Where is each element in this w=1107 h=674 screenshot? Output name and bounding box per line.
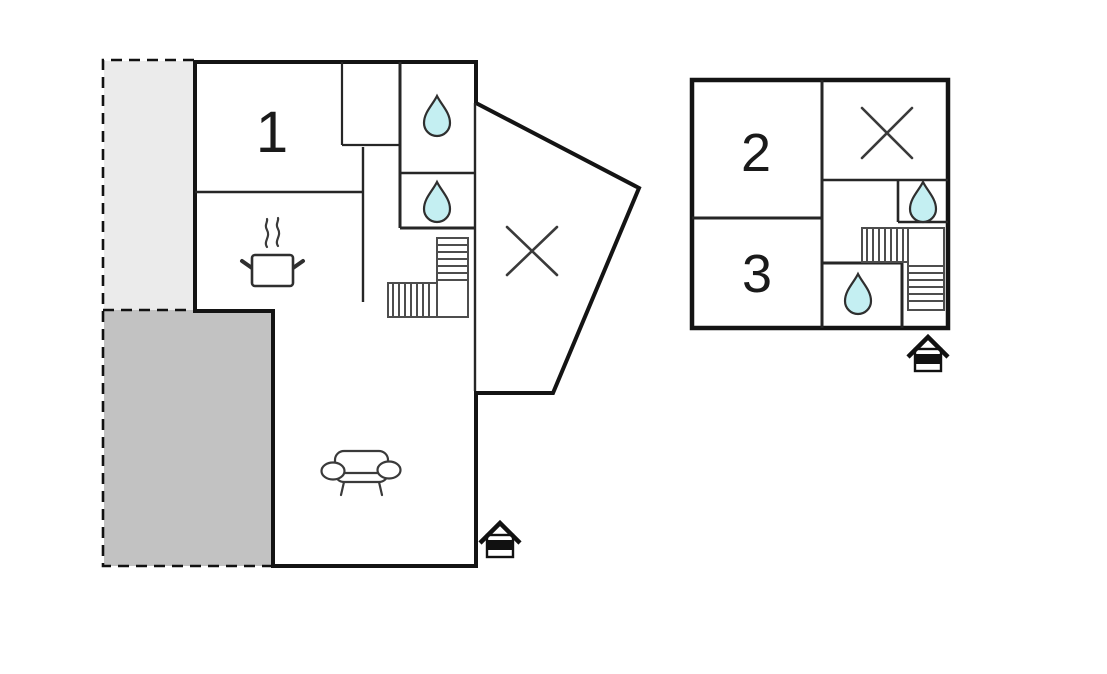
stairs-treads-horizontal-run bbox=[867, 229, 903, 261]
upper-floor-plan: 2 3 bbox=[692, 80, 948, 371]
sofa-armrest bbox=[378, 462, 401, 479]
terrace-upper-area bbox=[104, 61, 195, 310]
room-label-3: 3 bbox=[742, 244, 772, 304]
stairs-treads-horizontal-run bbox=[393, 284, 429, 316]
sofa-armrest bbox=[322, 463, 345, 480]
entrance-house-band bbox=[487, 540, 513, 550]
entrance-icon bbox=[908, 337, 948, 371]
stairs-upper-flight bbox=[437, 238, 468, 317]
entrance-icon bbox=[480, 523, 520, 557]
room-label-2: 2 bbox=[741, 123, 771, 183]
entrance-house-band bbox=[915, 354, 941, 364]
ground-floor-plan: 1 bbox=[103, 60, 639, 566]
stairs-right-flight bbox=[908, 228, 944, 310]
floor-plan-page: 1 2 3 bbox=[0, 0, 1107, 674]
room-label-1: 1 bbox=[256, 100, 288, 165]
floor-plan-canvas: 1 2 3 bbox=[0, 0, 1107, 674]
terrace-lower-area bbox=[104, 310, 273, 566]
pot-body bbox=[252, 255, 293, 286]
